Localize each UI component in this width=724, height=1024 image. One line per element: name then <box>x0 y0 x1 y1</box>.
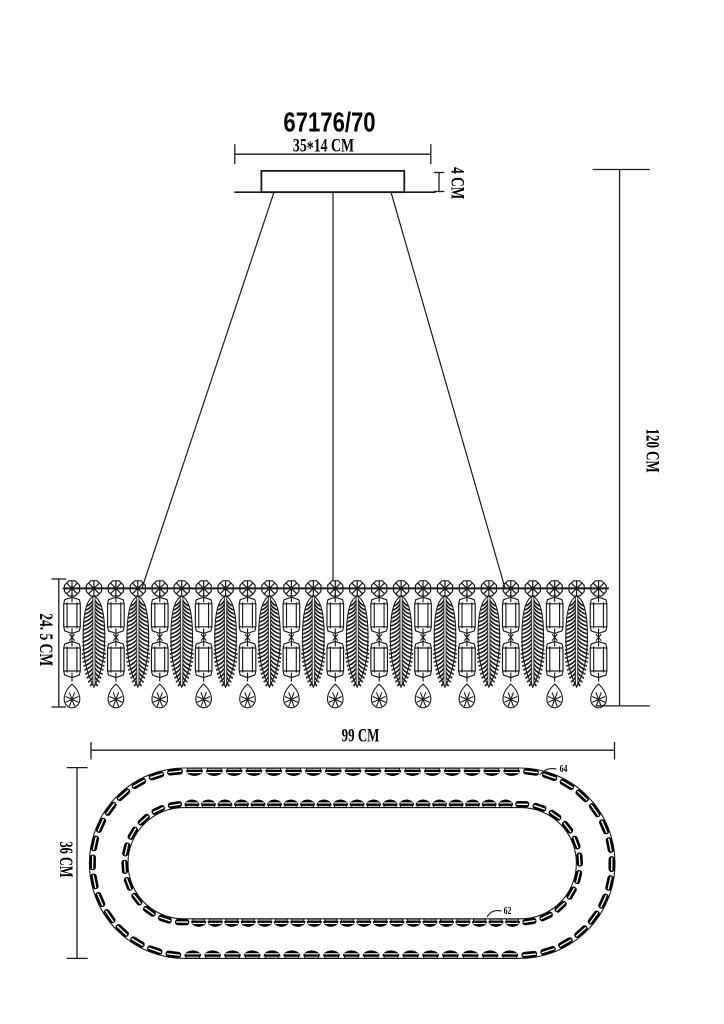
svg-text:4 CM: 4 CM <box>447 167 469 199</box>
svg-text:64: 64 <box>560 763 568 774</box>
svg-text:120 CM: 120 CM <box>642 429 663 473</box>
svg-text:62: 62 <box>504 905 512 916</box>
svg-text:36 CM: 36 CM <box>55 842 75 878</box>
svg-text:35*14 CM: 35*14 CM <box>293 134 354 158</box>
svg-text:99 CM: 99 CM <box>342 725 380 746</box>
svg-text:24. 5 CM: 24. 5 CM <box>35 613 57 666</box>
